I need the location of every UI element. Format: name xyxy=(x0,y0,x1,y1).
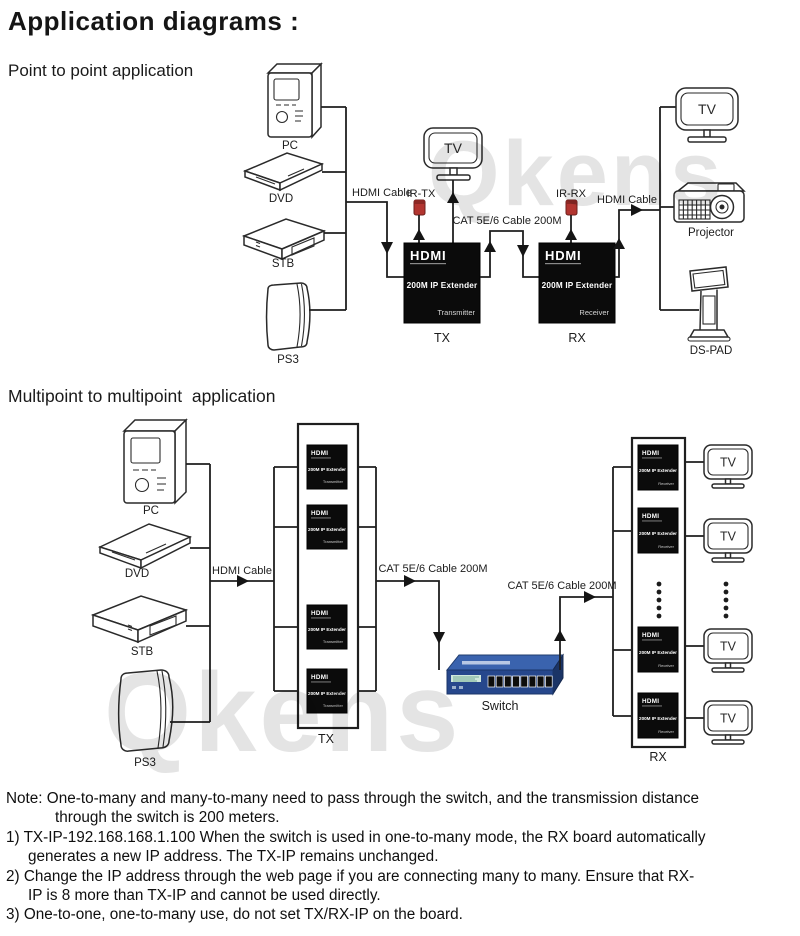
note-line: IP is 8 more than TX-IP and cannot be us… xyxy=(28,886,798,905)
pc-device: PC xyxy=(268,64,321,152)
unit-role-label: Transmitter xyxy=(323,703,344,708)
unit-model-label: 200M IP Extender xyxy=(308,467,346,472)
switch-top-print xyxy=(462,661,510,665)
tv-outputs: TV TV TV xyxy=(685,445,752,744)
tx-model-label: 200M IP Extender xyxy=(407,281,478,290)
tv-sink: TV xyxy=(704,629,752,672)
projector-label: Projector xyxy=(688,227,734,239)
hdmi-logo: HDMI xyxy=(410,248,446,263)
tx-bank-tag: TX xyxy=(318,732,335,746)
hdmi-logo: HDMI xyxy=(311,510,328,517)
rx-unit: HDMI 200M IP Extender Receiver xyxy=(638,627,678,672)
unit-model-label: 200M IP Extender xyxy=(639,716,677,721)
unit-model-label: 200M IP Extender xyxy=(639,650,677,655)
tv-label: TV xyxy=(720,456,737,470)
switch-label: Switch xyxy=(482,699,519,713)
note-line: through the switch is 200 meters. xyxy=(55,808,798,827)
dvd-label: DVD xyxy=(269,193,293,205)
cat-cable-label: CAT 5E/6 Cable 200M xyxy=(452,215,561,227)
unit-role-label: Transmitter xyxy=(323,639,344,644)
tv-label: TV xyxy=(698,101,717,117)
unit-role-label: Transmitter xyxy=(323,479,344,484)
tx-unit: HDMI 200M IP Extender Transmitter xyxy=(307,505,347,549)
rx-tag: RX xyxy=(568,331,586,345)
unit-role-label: Receiver xyxy=(658,663,674,668)
tx-bank: HDMI 200M IP Extender Transmitter HDMI 2… xyxy=(298,424,358,746)
dvd-label: DVD xyxy=(125,568,149,580)
right-arrow-icon xyxy=(404,575,416,587)
ir-rx-label: IR-RX xyxy=(556,188,587,200)
dvd-device: DVD xyxy=(245,153,322,205)
tx-tag: TX xyxy=(434,331,451,345)
down-arrow-icon xyxy=(381,242,393,254)
network-switch: Switch xyxy=(447,655,563,713)
unit-role-label: Transmitter xyxy=(323,539,344,544)
diagram-point-to-point: PC DVD STB xyxy=(244,64,744,366)
tv-sink: TV xyxy=(704,701,752,744)
note-line: 1) TX-IP-192.168.168.1.100 When the swit… xyxy=(6,828,798,847)
tx-unit: HDMI 200M IP Extender Transmitter xyxy=(307,445,347,489)
hdmi-cable-label: HDMI Cable xyxy=(597,194,657,206)
hdmi-cable-label: HDMI Cable xyxy=(212,565,272,577)
hdmi-logo: HDMI xyxy=(642,632,659,639)
hdmi-logo: HDMI xyxy=(311,610,328,617)
cat-cable-label: CAT 5E/6 Cable 200M xyxy=(378,563,487,575)
ps3-device: PS3 xyxy=(119,670,173,769)
ds-pad-sink: DS-PAD xyxy=(688,267,732,357)
unit-role-label: Receiver xyxy=(658,729,674,734)
diagram-multipoint: PC DVD STB xyxy=(93,420,752,769)
notes-block: Note: One-to-many and many-to-many need … xyxy=(6,789,798,925)
note-line: generates a new IP address. The TX-IP re… xyxy=(28,847,798,866)
hdmi-logo: HDMI xyxy=(311,450,328,457)
hdmi-logo: HDMI xyxy=(642,698,659,705)
hdmi-logo-fineprint xyxy=(545,263,581,264)
stb-device: STB xyxy=(244,219,324,270)
rx-unit: HDMI 200M IP Extender Receiver xyxy=(638,508,678,553)
manual-page: Application diagrams : Point to point ap… xyxy=(0,0,800,936)
hdmi-cable-label: HDMI Cable xyxy=(352,187,412,199)
tv-sink: TV xyxy=(704,445,752,488)
ir-tx-emitter: IR-TX xyxy=(407,188,436,243)
unit-model-label: 200M IP Extender xyxy=(639,531,677,536)
rx-unit: HDMI 200M IP Extender Receiver xyxy=(638,693,678,738)
ds-pad-label: DS-PAD xyxy=(690,345,733,357)
rx-model-label: 200M IP Extender xyxy=(542,281,613,290)
hdmi-logo: HDMI xyxy=(642,450,659,457)
hdmi-logo: HDMI xyxy=(545,248,581,263)
hdmi-logo: HDMI xyxy=(642,513,659,520)
tx-extender-box: HDMI 200M IP Extender Transmitter TX xyxy=(404,243,480,345)
ps3-label: PS3 xyxy=(134,757,156,769)
ir-tx-label: IR-TX xyxy=(407,188,436,200)
ir-dongle-cap xyxy=(414,200,425,204)
stb-label: STB xyxy=(131,646,154,658)
hdmi-cable-lines-left: HDMI Cable xyxy=(309,107,412,310)
pc-label: PC xyxy=(143,505,159,517)
ellipsis-dots xyxy=(724,582,729,619)
unit-model-label: 200M IP Extender xyxy=(639,468,677,473)
tx-unit: HDMI 200M IP Extender Transmitter xyxy=(307,605,347,649)
rx-extender-box: HDMI 200M IP Extender Receiver RX xyxy=(539,243,615,345)
tv-label: TV xyxy=(720,640,737,654)
stb-label: STB xyxy=(272,258,295,270)
ps3-device: PS3 xyxy=(267,283,311,366)
hdmi-cable-lines: HDMI Cable xyxy=(170,464,298,722)
hdmi-logo-fineprint xyxy=(410,263,446,264)
hdmi-logo: HDMI xyxy=(311,674,328,681)
tv-sink: TV xyxy=(676,88,738,142)
up-arrow-icon xyxy=(413,229,425,240)
up-arrow-icon xyxy=(484,241,496,252)
unit-model-label: 200M IP Extender xyxy=(308,627,346,632)
up-arrow-icon xyxy=(554,630,566,641)
pc-device: PC xyxy=(124,420,186,517)
ps3-label: PS3 xyxy=(277,354,299,366)
pc-label: PC xyxy=(282,140,298,152)
rx-role-label: Receiver xyxy=(579,308,609,317)
tx-role-label: Transmitter xyxy=(437,308,475,317)
rx-bank-tag: RX xyxy=(649,750,667,764)
tv-label: TV xyxy=(720,712,737,726)
note-line: 3) One-to-one, one-to-many use, do not s… xyxy=(6,905,798,924)
tx-unit: HDMI 200M IP Extender Transmitter xyxy=(307,669,347,713)
note-line: Note: One-to-many and many-to-many need … xyxy=(6,789,798,808)
cat-cable-label: CAT 5E/6 Cable 200M xyxy=(507,580,616,592)
up-arrow-icon xyxy=(565,229,577,240)
dvd-device: DVD xyxy=(100,524,190,580)
tv-label: TV xyxy=(444,140,463,156)
ir-dongle-cap xyxy=(566,200,577,204)
down-arrow-icon xyxy=(433,632,445,644)
stb-device: STB xyxy=(93,596,186,658)
projector-sink: Projector xyxy=(674,183,744,239)
unit-model-label: 200M IP Extender xyxy=(308,691,346,696)
rx-bank: HDMI 200M IP Extender Receiver HDMI 200M… xyxy=(632,438,685,764)
up-arrow-icon xyxy=(447,192,459,203)
unit-role-label: Receiver xyxy=(658,481,674,486)
note-line: 2) Change the IP address through the web… xyxy=(6,867,798,886)
right-arrow-icon xyxy=(584,591,596,603)
unit-model-label: 200M IP Extender xyxy=(308,527,346,532)
rx-unit: HDMI 200M IP Extender Receiver xyxy=(638,445,678,490)
tv-label: TV xyxy=(720,530,737,544)
tv-sink: TV xyxy=(704,519,752,562)
down-arrow-icon xyxy=(517,245,529,257)
unit-role-label: Receiver xyxy=(658,544,674,549)
